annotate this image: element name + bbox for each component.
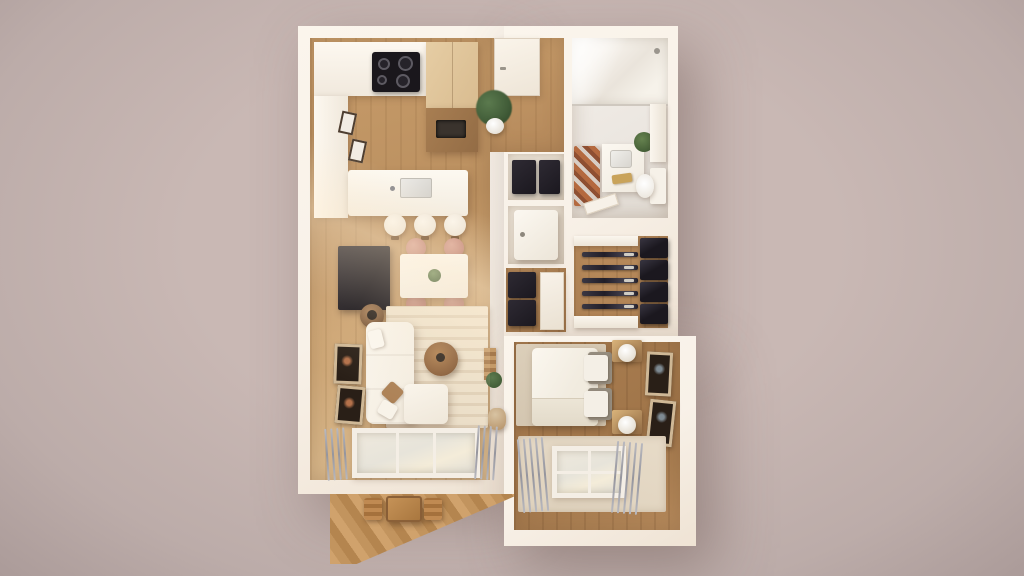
bathroom-rug	[574, 146, 600, 206]
render-canvas	[0, 0, 1024, 576]
closet-shelf-boxes	[640, 238, 668, 326]
storage-niche	[508, 154, 564, 200]
toilet	[636, 174, 654, 198]
towel	[611, 173, 632, 185]
balcony-chair	[424, 498, 442, 520]
shoe-shelf	[508, 300, 536, 326]
clothes-rail	[582, 291, 638, 296]
island-sink	[400, 178, 432, 198]
clothes-rail	[582, 265, 638, 270]
kitchen-lower-unit	[426, 108, 478, 152]
bathroom-cabinet	[650, 104, 666, 162]
window-mullion	[557, 471, 621, 474]
wall-artwork	[645, 351, 673, 396]
table-lamp	[618, 416, 636, 434]
appliance-niche	[508, 206, 564, 264]
shelf-box	[640, 282, 668, 302]
hallway-door	[540, 272, 564, 330]
artwork-detail	[653, 363, 666, 376]
kitchen-island	[348, 170, 468, 216]
washing-machine	[514, 210, 558, 260]
pillow-set	[584, 352, 614, 384]
burner-icon	[377, 75, 387, 85]
clothes-rail	[582, 304, 638, 309]
storage-box	[539, 160, 560, 194]
wall-artwork	[333, 344, 362, 385]
curtain	[324, 427, 354, 481]
wall-artwork	[334, 385, 365, 425]
dining-table	[400, 254, 468, 298]
plant	[428, 269, 441, 282]
artwork-detail	[655, 410, 668, 423]
front-door	[494, 38, 540, 96]
burner-icon	[398, 56, 413, 71]
window-mullion	[396, 433, 399, 473]
balcony-table	[386, 496, 422, 522]
burner-icon	[378, 58, 390, 70]
plant-pot	[486, 118, 504, 134]
kitchen-tall-cabinet	[426, 42, 478, 108]
window-mullion	[433, 433, 436, 473]
pillow	[584, 391, 608, 417]
artwork-detail	[341, 355, 353, 367]
cooktop	[372, 52, 420, 92]
sofa-chaise	[404, 384, 448, 424]
vanity-sink	[610, 150, 632, 168]
wall-tv	[338, 246, 390, 310]
plant	[486, 372, 502, 388]
closet-shelf	[574, 236, 638, 246]
clothes-rail	[582, 252, 638, 257]
clothes-rail	[582, 278, 638, 283]
burner-icon	[396, 74, 410, 88]
coffee-table	[424, 342, 458, 376]
faucet-icon	[390, 186, 395, 191]
shower	[572, 38, 668, 106]
clothes-rails	[582, 252, 638, 312]
bar-stool	[414, 214, 436, 236]
bar-stool	[384, 214, 406, 236]
balcony-chair	[364, 498, 382, 520]
balcony-window	[352, 428, 480, 478]
shelf-box	[640, 238, 668, 258]
pillow	[584, 355, 608, 381]
kitchen-sink	[436, 120, 466, 138]
curtain	[474, 425, 504, 481]
closet-shelf	[574, 316, 638, 328]
storage-box	[512, 160, 536, 194]
shelf-box	[640, 304, 668, 324]
pillow-set	[584, 388, 614, 420]
table-lamp	[618, 344, 636, 362]
shelf-box	[640, 260, 668, 280]
artwork-detail	[343, 396, 356, 409]
bar-stool	[444, 214, 466, 236]
shoe-shelf	[508, 272, 536, 298]
